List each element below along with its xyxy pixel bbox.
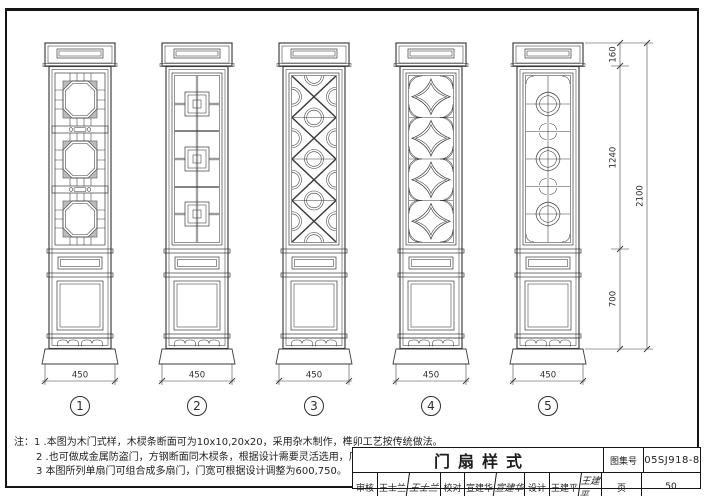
notes-prefix: 注： — [14, 437, 34, 448]
door-1-width-dimension: 450 — [41, 364, 119, 394]
door-panel-1: 450 1 — [41, 38, 119, 418]
door-1-drawing — [41, 38, 119, 372]
door-1-number-badge: 1 — [70, 396, 90, 416]
door-5-width-dimension: 450 — [509, 364, 587, 394]
dim-top-label: 160 — [609, 46, 619, 62]
reviewer-signature: 王士兰 — [405, 473, 442, 496]
door-panel-4: 450 4 — [392, 38, 470, 418]
door-3-cross-circle-lattice — [283, 67, 346, 252]
checker-signature: 宣建华 — [492, 473, 526, 496]
door-panel-2: 450 2 — [158, 38, 236, 418]
dim-middle-label: 1240 — [609, 147, 619, 169]
door-4-width-dimension: 450 — [392, 364, 470, 394]
door-1-width-label: 450 — [72, 371, 88, 381]
designer-name: 王建平 — [549, 473, 579, 496]
reviewer-name: 王士兰 — [377, 473, 407, 496]
door-2-number-badge: 2 — [187, 396, 207, 416]
atlas-number-value: 05SJ918-8 — [643, 448, 700, 472]
door-1-octagon-lattice — [52, 73, 108, 245]
page-label: 页 — [601, 473, 641, 496]
door-5-number-badge: 5 — [538, 396, 558, 416]
title-block: 门扇样式 图集号 05SJ918-8 审核 王士兰 王士兰 校对 宣建华 宣建华… — [352, 447, 701, 489]
door-3-width-dimension: 450 — [275, 364, 353, 394]
door-2-drawing — [158, 38, 236, 372]
door-panel-5: 450 5 — [509, 38, 587, 418]
door-5-drawing — [509, 38, 587, 372]
designer-signature: 王建平 — [577, 473, 603, 496]
review-label: 审核 — [353, 473, 377, 496]
door-panel-3: 450 3 — [275, 38, 353, 418]
checker-name: 宣建华 — [464, 473, 494, 496]
check-label: 校对 — [440, 473, 464, 496]
door-2-square-lattice — [172, 73, 222, 245]
page-number: 50 — [641, 473, 700, 496]
sheet-title: 门扇样式 — [353, 448, 603, 472]
door-4-width-label: 450 — [423, 371, 439, 381]
door-3-number-badge: 3 — [304, 396, 324, 416]
door-3-width-label: 450 — [306, 371, 322, 381]
door-2-width-label: 450 — [189, 371, 205, 381]
atlas-number-label: 图集号 — [603, 448, 643, 472]
door-3-drawing — [275, 38, 353, 372]
design-label: 设计 — [524, 473, 549, 496]
drawing-sheet: 450 1 450 — [0, 0, 707, 496]
title-block-row-2: 审核 王士兰 王士兰 校对 宣建华 宣建华 设计 王建平 王建平 页 50 — [353, 473, 700, 496]
dim-bottom-label: 700 — [609, 291, 619, 307]
title-block-row-1: 门扇样式 图集号 05SJ918-8 — [353, 448, 700, 473]
door-4-diamond-arc-lattice — [406, 73, 456, 245]
door-5-quatrefoil-lattice — [523, 73, 573, 245]
door-2-width-dimension: 450 — [158, 364, 236, 394]
door-5-width-label: 450 — [540, 371, 556, 381]
height-dimensions: 160 1240 700 2100 — [583, 36, 703, 376]
door-4-drawing — [392, 38, 470, 372]
door-4-number-badge: 4 — [421, 396, 441, 416]
dim-total-label: 2100 — [636, 185, 646, 207]
